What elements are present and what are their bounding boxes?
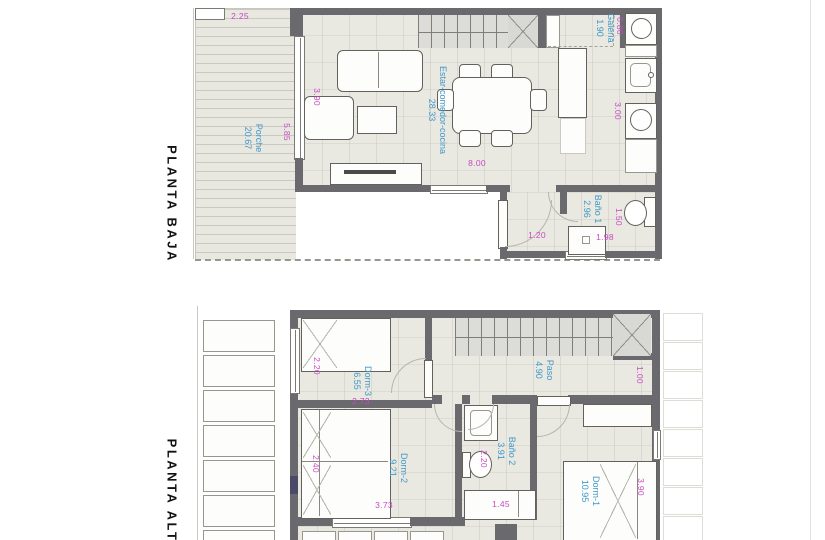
- dim-entry: 1.20: [528, 230, 546, 240]
- dim-bath-width: 1.50: [614, 208, 624, 226]
- wall-entry-bottom-b: [605, 251, 662, 258]
- room-name: Estar-comedor-cocina: [437, 66, 448, 154]
- galeria-dashed-h: [548, 46, 613, 47]
- balcony-rail: [338, 531, 372, 540]
- pergola-slat: [203, 495, 275, 527]
- room-area: 20.67: [242, 124, 253, 153]
- dim-door-height: 5.85: [282, 123, 292, 141]
- galeria-sliding-door: [546, 15, 560, 48]
- balcony-rail: [302, 531, 336, 540]
- terrace-tile: [663, 487, 703, 515]
- pergola-slat: [203, 355, 275, 387]
- faucet-icon: [648, 72, 654, 78]
- dining-chair: [491, 130, 513, 147]
- wall-laundry-stub: [495, 524, 517, 540]
- balcony-rail: [374, 531, 408, 540]
- floor-plan-sheet: PLANTA BAJA: [0, 0, 825, 540]
- sofa: [337, 50, 423, 92]
- dim-wc: 2.20: [479, 450, 489, 468]
- terrace-tile: [663, 458, 703, 486]
- dim-bed1: 3.90: [636, 478, 646, 496]
- room-area: 3.91: [495, 437, 506, 466]
- room-label-bano1: Baño 1 2.96: [581, 195, 603, 224]
- sheet-border-line: [810, 0, 811, 540]
- wall-left-upper: [290, 8, 303, 36]
- dim-salon-length: 8.00: [468, 158, 486, 168]
- terrace-tile: [663, 371, 703, 399]
- room-label-dorm2: Dorm-2 9.21: [387, 453, 409, 483]
- room-area: 10.95: [579, 476, 590, 506]
- wall-entry-left-a: [500, 192, 507, 200]
- dim-dorm2-width: 3.73: [375, 500, 393, 510]
- room-label-dorm1: Dorm-1 10.95: [579, 476, 601, 506]
- dim-laundry: 1.45: [492, 499, 510, 509]
- wall-hall-top: [556, 185, 662, 192]
- tv-cabinet: [330, 163, 422, 185]
- dorm1-wardrobe: [583, 404, 652, 427]
- kitchen-peninsula: [558, 48, 587, 118]
- pergola-slat: [203, 425, 275, 457]
- pergola-slat: [203, 530, 275, 540]
- bed-fold-icon: [600, 464, 636, 538]
- room-area: 1.90: [594, 13, 605, 43]
- wall-dorm3-paso: [425, 318, 432, 360]
- dim-porch-width: 2.25: [231, 11, 249, 21]
- terrace-tile: [663, 313, 703, 341]
- window-dorm3: [290, 328, 300, 394]
- porch-corner-box: [195, 8, 225, 20]
- window-living-bottom: [430, 185, 488, 194]
- kitchen-counter: [625, 139, 657, 173]
- balcony-rail: [410, 531, 444, 540]
- toilet-bowl-icon: [624, 200, 647, 226]
- room-area: 4.90: [533, 360, 544, 381]
- dining-table: [452, 77, 532, 134]
- dim-paso: 1.00: [635, 366, 645, 384]
- room-area: 2.96: [581, 195, 592, 224]
- ground-floor-title: PLANTA BAJA: [165, 145, 180, 263]
- dining-chair: [459, 130, 481, 147]
- wall-paso-d: [568, 395, 652, 404]
- kitchen-peninsula-low: [560, 118, 586, 154]
- terrace-tile: [663, 400, 703, 428]
- room-name: Dorm-1: [590, 476, 601, 506]
- bed-headboard-line: [637, 462, 638, 539]
- dim-washer: 0.80: [615, 17, 625, 35]
- terrace-tile: [663, 516, 703, 540]
- terrace-tile: [663, 342, 703, 370]
- pergola-slat: [203, 460, 275, 492]
- bed-fold-icon: [303, 412, 331, 458]
- wall-top-upper: [290, 310, 660, 318]
- room-label-dorm3: Dorm-3 6.55: [351, 366, 373, 396]
- room-name: Porche: [253, 124, 264, 153]
- dim-bed3: 2.20: [312, 357, 322, 375]
- dim-kitchen: 3.00: [613, 102, 623, 120]
- dim-dorm3-width: 2.73: [352, 396, 370, 406]
- closet-cross: [613, 314, 651, 356]
- dining-chair: [530, 89, 547, 111]
- room-name: Baño 1: [592, 195, 603, 224]
- room-label-galeria: Galería 1.90: [594, 13, 616, 43]
- dim-bed2: 2.40: [311, 455, 321, 473]
- plot-edge-line: [193, 8, 194, 259]
- stairs-upper: [455, 318, 613, 356]
- laundry-divider: [518, 491, 519, 517]
- room-name: Paso: [544, 360, 555, 381]
- wall-paso-b: [462, 395, 470, 404]
- wall-bottom-b: [410, 517, 465, 526]
- wall-entry-bottom-a: [500, 251, 565, 258]
- kitchen-shelf: [625, 45, 657, 57]
- room-name: Dorm-3: [362, 366, 373, 396]
- tv-icon: [344, 170, 396, 174]
- room-area: 6.55: [351, 366, 362, 396]
- terrace-tile: [663, 429, 703, 457]
- room-label-bano2: Baño 2 3.91: [495, 437, 517, 466]
- pergola-slat: [203, 320, 275, 352]
- plot-edge-line-lower: [197, 306, 198, 540]
- oven-burner-icon: [630, 109, 652, 131]
- shower-drain-icon: [582, 236, 590, 244]
- dim-bath-length: 1.98: [596, 232, 614, 242]
- sofa-divider: [378, 52, 379, 88]
- stairs-landing-cross: [508, 15, 538, 48]
- window-frame-dark: [290, 476, 298, 494]
- room-area: 9.21: [387, 453, 398, 483]
- room-name: Baño 2: [506, 437, 517, 466]
- pergola-slat: [203, 390, 275, 422]
- upper-floor-title: PLANTA ALTA: [165, 439, 180, 540]
- window-living-left: [294, 36, 305, 160]
- dim-salon-width: 3.90: [312, 88, 322, 106]
- room-name: Dorm-2: [398, 453, 409, 483]
- wall-paso-c: [492, 395, 537, 404]
- room-label-porche: Porche 20.67: [242, 124, 264, 153]
- wall-living-bottom-a: [295, 185, 430, 192]
- wall-living-bottom-b: [486, 185, 510, 192]
- room-label-paso: Paso 4.90: [533, 360, 555, 381]
- room-label-estar: Estar-comedor-cocina 28.33: [426, 66, 448, 154]
- coffee-table: [357, 106, 397, 134]
- window-dorm1: [653, 430, 661, 460]
- wall-paso-a: [432, 395, 442, 404]
- room-area: 28.33: [426, 66, 437, 154]
- washer-drum-icon: [631, 18, 652, 39]
